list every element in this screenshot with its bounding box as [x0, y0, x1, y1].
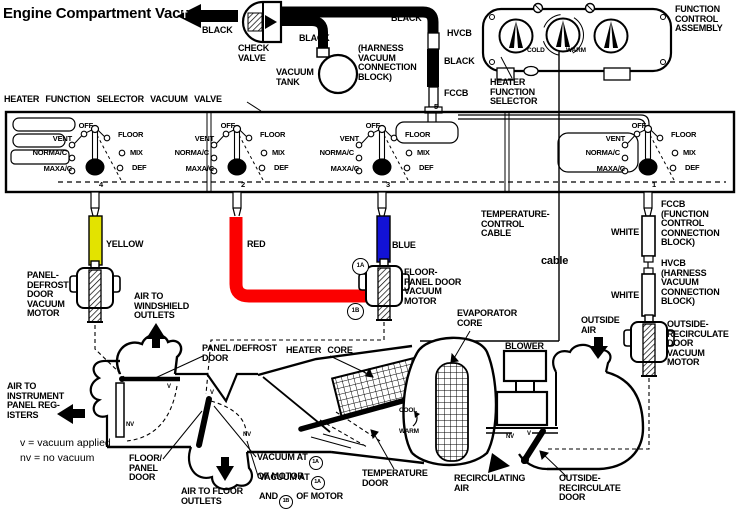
valve-label-norm-ac: NORMA/C [15, 149, 67, 157]
recirculating-air-label: RECIRCULATING AIR [454, 474, 525, 493]
heater-core-label: HEATER CORE [286, 346, 353, 356]
supply-black-label: BLACK [391, 14, 422, 24]
valve-box-title: HEATER FUNCTION SELECTOR VACUUM VALVE [4, 95, 222, 105]
valve-label-off: OFF [45, 122, 93, 130]
floor-air-arrow-icon [216, 457, 234, 481]
panel-defrost-door-label: PANEL /DEFROST DOOR [202, 344, 277, 363]
fccb-top-label: FCCB [444, 89, 468, 99]
evaporator-housing [403, 338, 496, 465]
blower-knob-icon [595, 20, 628, 53]
valve-label-floor: FLOOR [671, 131, 696, 139]
valve-label-floor: FLOOR [405, 131, 430, 139]
note2-port-a-icon: 1A [311, 476, 325, 490]
black-hose-label: BLACK [202, 26, 233, 36]
warm-knob-label: WARM [566, 47, 586, 54]
registers-air-label: AIR TO INSTRUMENT PANEL REG- ISTERS [7, 382, 64, 420]
valve-label-off: OFF [332, 122, 380, 130]
panel-defrost-vacuum-motor-symbol [70, 261, 120, 322]
vacuum-tank-label: VACUUM TANK [276, 68, 314, 87]
floor-air-label: AIR TO FLOOR OUTLETS [181, 487, 243, 506]
valve-label-vent: VENT [15, 135, 72, 143]
vacuum-diagram: Engine Compartment Vacuum T BLACK CHECK … [0, 0, 739, 516]
red-hose [236, 217, 366, 296]
function-control-assembly-label: FUNCTION CONTROL ASSEMBLY [675, 5, 723, 34]
hvcb-black-label: BLACK [444, 57, 475, 67]
panel-defrost-motor-label: PANEL- DEFROST DOOR VACUUM MOTOR [27, 271, 69, 319]
legend-no-vacuum: nv = no vacuum [20, 452, 94, 464]
white-hose-upper-label: WHITE [605, 228, 639, 238]
yellow-hose-label: YELLOW [106, 240, 143, 250]
valve-label-vent: VENT [157, 135, 214, 143]
temperature-control-cable-label: TEMPERATURE- CONTROL CABLE [481, 210, 549, 239]
valve-label-vent: VENT [302, 135, 359, 143]
port-1a-ref: 1A [352, 258, 369, 275]
door-state-nv-2: NV [243, 432, 251, 438]
heater-function-selector-label: HEATER FUNCTION SELECTOR [490, 78, 537, 107]
temperature-door-label: TEMPERATURE DOOR [362, 469, 428, 488]
valve-port-number: 4 [99, 181, 103, 189]
door-state-nv-3: NV [506, 434, 514, 440]
door-state-v-1: V [167, 384, 171, 390]
valve-label-norm-ac: NORMA/C [302, 149, 354, 157]
red-hose-label: RED [247, 240, 265, 250]
outside-recirc-door-label: OUTSIDE- RECIRCULATE DOOR [559, 474, 621, 503]
outside-recirculate-door [521, 431, 543, 464]
valve-port-number: 1 [652, 181, 656, 189]
outside-air-arrow-icon [589, 337, 608, 359]
white-hose-lower-label: WHITE [605, 291, 639, 301]
valve-group-3: OFF VENT NORMA/C MAXA/C FLOOR MIX DEF 3 [302, 112, 464, 192]
valve-label-vent: VENT [568, 135, 625, 143]
valve-label-norm-ac: NORMA/C [568, 149, 620, 157]
check-valve-symbol [243, 2, 281, 42]
door-state-v-2: V [210, 390, 214, 396]
valve-port-number: 2 [241, 181, 245, 189]
arrow-letter: T [182, 11, 187, 21]
blue-hose [377, 216, 390, 262]
hvcb-top-label: HVCB [447, 29, 472, 39]
valve-label-norm-ac: NORMA/C [157, 149, 209, 157]
valve-label-def: DEF [274, 164, 288, 172]
evaporator-core-label: EVAPORATOR CORE [457, 309, 517, 328]
legend-vacuum: v = vacuum applied [20, 437, 111, 449]
cold-label: COLD [527, 47, 545, 54]
valve-label-mix: MIX [272, 149, 285, 157]
valve-port-5: 5 [434, 103, 438, 111]
note2-port-b-icon: 1B [279, 495, 293, 509]
valve-label-def: DEF [419, 164, 433, 172]
recirculating-air-arrow-icon [488, 453, 510, 473]
valve-label-floor: FLOOR [118, 131, 143, 139]
valve-label-max-ac: MAXA/C [306, 165, 359, 173]
valve-label-def: DEF [685, 164, 699, 172]
page-title: Engine Compartment Vacuum [3, 6, 211, 22]
outside-recirc-motor-label: OUTSIDE- RECIRCULATE DOOR VACUUM MOTOR [667, 320, 729, 368]
cable-label: cable [541, 255, 568, 267]
valve-label-floor: FLOOR [260, 131, 285, 139]
yellow-hose [89, 216, 102, 265]
outside-air-label: OUTSIDE AIR [581, 316, 620, 335]
windshield-air-arrow-icon [146, 323, 166, 348]
warm-flow-label: WARM [399, 428, 419, 435]
valve-label-max-ac: MAXA/C [161, 165, 214, 173]
valve-label-off: OFF [187, 122, 235, 130]
blue-hose-label: BLUE [392, 241, 416, 251]
valve-label-max-ac: MAXA/C [19, 165, 72, 173]
valve-label-off: OFF [598, 122, 646, 130]
windshield-air-label: AIR TO WINDSHIELD OUTLETS [134, 292, 189, 321]
valve-port-number: 3 [386, 181, 390, 189]
evaporator-grid [436, 363, 468, 461]
valve-group-2: OFF VENT NORMA/C MAXA/C FLOOR MIX DEF 2 [157, 112, 319, 192]
cool-flow-label: COOL [399, 407, 417, 414]
blower-label: BLOWER [505, 342, 544, 352]
valve-group-4: OFF VENT NORMA/C MAXA/C FLOOR MIX DEF 1 [568, 112, 730, 192]
valve-label-def: DEF [132, 164, 146, 172]
note1-port-a-icon: 1A [309, 456, 323, 470]
check-valve-label: CHECK VALVE [238, 44, 269, 63]
note1-text: VACUUM AT [257, 452, 308, 462]
white-hose [642, 216, 655, 316]
fccb-block-label: FCCB (FUNCTION CONTROL CONNECTION BLOCK) [661, 200, 720, 248]
note2-text3: OF MOTOR [296, 491, 343, 501]
tank-hose-black-label: BLACK [299, 34, 330, 44]
valve-group-1: OFF VENT NORMA/C MAXA/C FLOOR MIX DEF 4 [15, 112, 177, 192]
valve-label-mix: MIX [417, 149, 430, 157]
floor-panel-motor-label: FLOOR- PANEL DOOR VACUUM MOTOR [404, 268, 461, 306]
note2-text: VACUUM AT [259, 472, 310, 482]
floor-panel-door [199, 399, 209, 445]
valve-label-max-ac: MAXA/C [572, 165, 625, 173]
vacuum-note-2: VACUUM AT1A AND1B OF MOTOR [259, 471, 343, 509]
harness-block-label: (HARNESS VACUUM CONNECTION BLOCK) [358, 44, 417, 82]
blower-art [486, 351, 558, 433]
valve-label-mix: MIX [683, 149, 696, 157]
floor-panel-door-label: FLOOR/ PANEL DOOR [129, 454, 162, 483]
door-state-nv-1: NV [126, 422, 134, 428]
hvcb-block-label: HVCB (HARNESS VACUUM CONNECTION BLOCK) [661, 259, 720, 307]
door-state-v-3: V [527, 431, 531, 437]
valve-label-mix: MIX [130, 149, 143, 157]
note2-text2: AND [259, 491, 278, 501]
port-1b-ref: 1B [347, 303, 364, 320]
